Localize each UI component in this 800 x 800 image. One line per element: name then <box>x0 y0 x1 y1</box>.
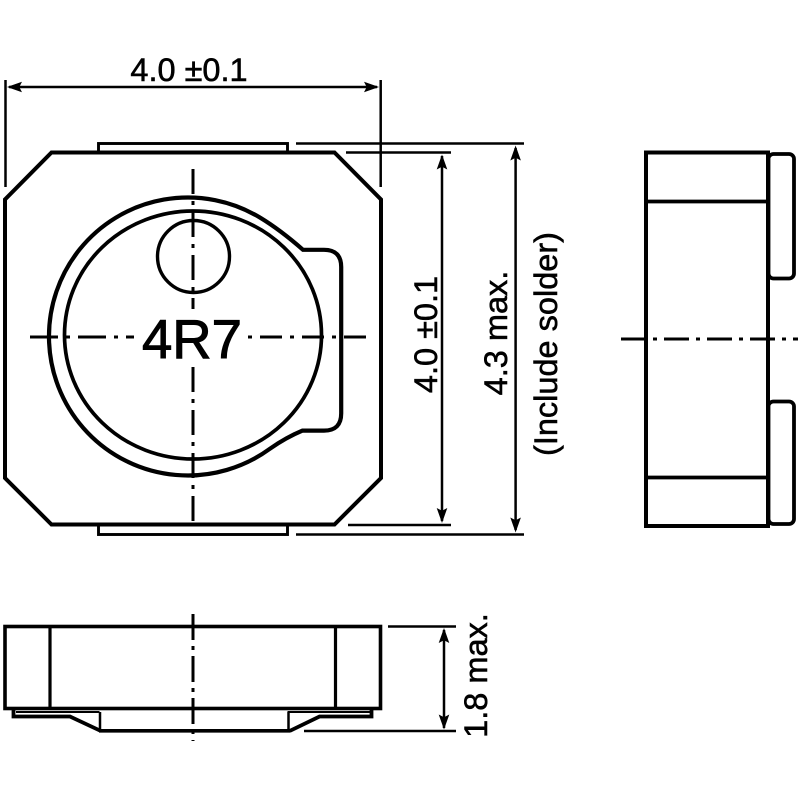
svg-text:4R7: 4R7 <box>142 309 242 370</box>
svg-text:4.3 max.: 4.3 max. <box>478 271 514 396</box>
svg-text:(Include solder): (Include solder) <box>528 232 564 456</box>
svg-text:4.0 ±0.1: 4.0 ±0.1 <box>408 276 444 393</box>
svg-text:1.8 max.: 1.8 max. <box>458 613 494 738</box>
svg-text:4.0 ±0.1: 4.0 ±0.1 <box>130 52 247 88</box>
